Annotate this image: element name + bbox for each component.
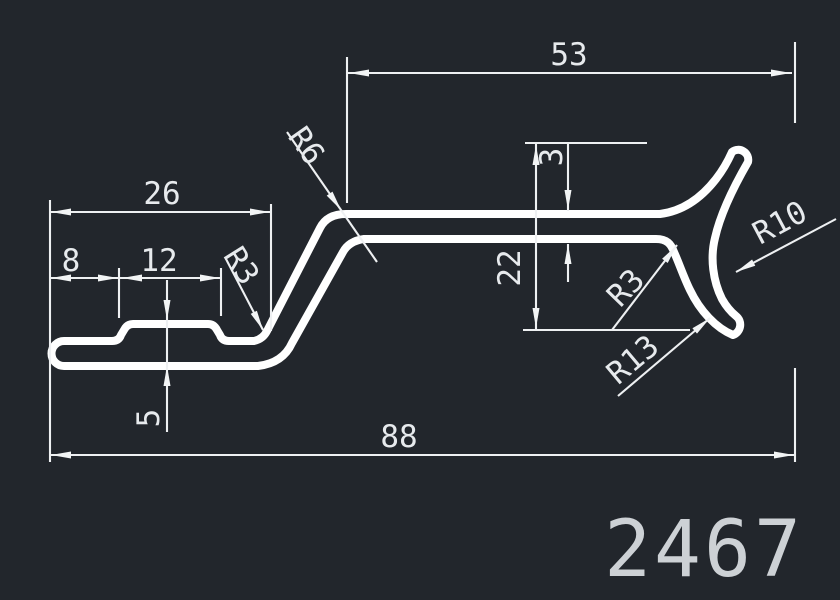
radius-r3-left-label: R3 xyxy=(216,241,266,292)
dim-53-label: 53 xyxy=(550,37,587,73)
dim-notch-offset: 8 xyxy=(50,243,221,318)
dim-3-label: 3 xyxy=(534,148,570,167)
radius-fork-fillet: R3 xyxy=(600,245,677,330)
dim-12-label: 12 xyxy=(140,243,177,279)
radius-fork-mouth: R10 xyxy=(736,194,836,272)
cad-viewport: 53 26 8 12 5 xyxy=(0,0,840,600)
part-number: 2467 xyxy=(604,505,804,595)
dim-26-label: 26 xyxy=(143,176,180,212)
arrow-down-icon xyxy=(164,300,171,320)
radius-lower-bend: R3 xyxy=(216,241,266,330)
arrow-right-icon xyxy=(250,209,270,216)
arrow-right-icon xyxy=(774,452,794,459)
arrow-left-icon xyxy=(51,452,71,459)
radius-r10-label: R10 xyxy=(747,194,813,252)
arrow-right-icon xyxy=(771,70,791,77)
dim-base-height: 5 xyxy=(131,280,171,432)
arrow-right-icon xyxy=(98,275,118,282)
arrow-up-icon xyxy=(565,244,572,264)
leader-arrow-icon xyxy=(251,311,263,330)
leader-arrow-icon xyxy=(692,318,710,334)
leader-arrow-icon xyxy=(736,260,755,273)
arrow-left-icon xyxy=(349,70,369,77)
dim-88-label: 88 xyxy=(380,419,417,455)
arrow-down-icon xyxy=(565,190,572,210)
arrow-left-icon xyxy=(51,209,71,216)
radius-r3-fork-label: R3 xyxy=(600,262,652,314)
radius-r6-label: R6 xyxy=(281,120,332,171)
radius-upper-bend: R6 xyxy=(281,120,377,262)
dim-upper-arm-length: 53 xyxy=(347,37,795,203)
leader-arrow-icon xyxy=(327,192,341,210)
arrow-down-icon xyxy=(533,308,540,328)
radius-r13-label: R13 xyxy=(600,328,666,392)
dim-5-label: 5 xyxy=(131,409,167,428)
dim-8-label: 8 xyxy=(62,243,81,279)
dim-notch-width: 12 xyxy=(122,243,220,282)
dim-22-label: 22 xyxy=(492,249,528,286)
arrow-right-icon xyxy=(200,275,220,282)
technical-drawing: 53 26 8 12 5 xyxy=(0,0,840,600)
arrow-left-icon xyxy=(122,275,142,282)
